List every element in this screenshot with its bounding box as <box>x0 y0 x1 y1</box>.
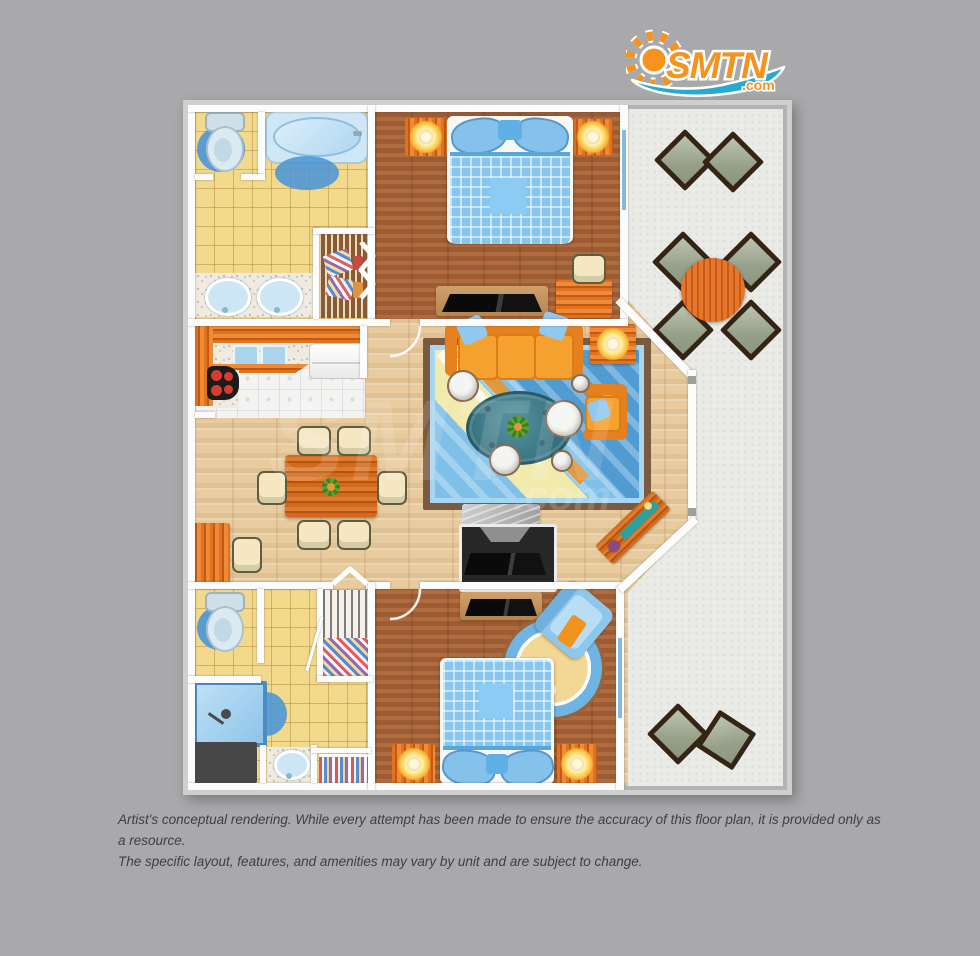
closet-rod-section <box>323 590 368 638</box>
disclaimer-text: Artist's conceptual rendering. While eve… <box>118 810 888 873</box>
wall-desk-chair <box>232 537 262 573</box>
tv <box>442 294 542 312</box>
plant-center <box>514 423 522 431</box>
kitchen-cabinet-top <box>213 326 360 343</box>
sink-left <box>205 278 251 316</box>
blanket-fold <box>490 178 526 214</box>
pouf <box>551 450 573 472</box>
balcony-window <box>622 130 626 210</box>
toilet <box>203 112 243 172</box>
bed-blanket <box>450 152 570 244</box>
linen-closet <box>319 754 371 785</box>
tv-console <box>436 286 548 316</box>
kitchen-sink-right <box>261 345 287 367</box>
lamp-shade <box>407 757 421 771</box>
dining-table <box>285 455 377 517</box>
lamp-shade <box>570 757 584 771</box>
sink <box>274 750 310 780</box>
tv-console <box>460 592 542 620</box>
wire-closet <box>323 590 368 676</box>
disclaimer-line-2: The specific layout, features, and ameni… <box>118 852 888 873</box>
armchair <box>583 384 627 440</box>
bathtub-faucet <box>353 131 362 136</box>
wall-break-symbol <box>357 242 377 304</box>
dining-chair <box>257 471 287 505</box>
desk-chair <box>572 254 606 284</box>
wall-bath2-partition <box>257 589 264 663</box>
floor-plan: SMTN .com <box>183 100 792 795</box>
wall-outer-left <box>188 105 195 785</box>
page: { "logo": { "brand": "SMTN", "tld": ".co… <box>0 0 980 956</box>
utility-area <box>191 742 257 783</box>
burner <box>211 370 222 381</box>
door-jamb <box>688 508 696 516</box>
burner <box>224 372 233 381</box>
pouf <box>447 370 479 402</box>
nightstand-lamp-right <box>573 119 613 155</box>
lamp-shade <box>586 130 600 144</box>
dining-chair <box>297 520 331 550</box>
burner <box>224 385 233 394</box>
bathtub-basin <box>273 117 361 157</box>
wall-h-upper-right <box>420 319 628 326</box>
wall-above-shower <box>188 676 261 683</box>
bed-pillow-center <box>486 754 508 774</box>
pouf <box>571 374 590 393</box>
wall-wirecloset-bottom <box>317 676 373 682</box>
door-arc-bedroom2 <box>390 589 422 621</box>
wall-h-upper-left <box>188 319 390 326</box>
lamp-shade <box>606 337 620 351</box>
disclaimer-line-1: Artist's conceptual rendering. While eve… <box>118 810 888 852</box>
bed <box>447 116 573 243</box>
wall-h-lower-left <box>188 582 333 589</box>
door-jamb <box>688 376 696 384</box>
tub-mat <box>275 156 339 190</box>
wall-closet1-top <box>313 228 375 234</box>
wall-closet1-left <box>313 228 319 319</box>
wall-closet2-top <box>311 748 371 753</box>
sofa-cushion <box>496 334 536 380</box>
sofa-arm-left <box>445 330 457 376</box>
vanity <box>267 747 311 783</box>
table-dot <box>485 406 491 412</box>
side-table-lamp <box>590 324 636 364</box>
nightstand-lamp-right <box>557 744 597 784</box>
balcony-wall-top <box>624 105 787 109</box>
refrigerator-divider <box>312 362 362 364</box>
blanket-fold <box>479 684 513 718</box>
faucet-left <box>222 307 228 313</box>
desk <box>556 280 612 318</box>
coffee-table-plant <box>507 416 529 438</box>
dining-chair <box>297 426 331 456</box>
wall-kitchen-right <box>360 326 367 378</box>
plan-frame-top <box>183 100 792 105</box>
double-sink-vanity <box>195 273 313 317</box>
door-arc-bedroom1 <box>390 326 422 358</box>
plan-frame-left <box>183 100 188 795</box>
pouf <box>489 444 521 476</box>
stove <box>207 366 239 400</box>
logo-tld-text: .com <box>742 77 775 93</box>
dining-chair <box>337 426 371 456</box>
refrigerator <box>309 343 367 379</box>
wall-vanity-left <box>260 745 266 783</box>
bed-pillow-center <box>498 120 522 140</box>
wall-living-balcony <box>688 370 696 522</box>
cabinet-notch <box>480 527 530 542</box>
door-chevron-symbol <box>331 566 369 586</box>
closet-linens <box>323 638 368 676</box>
wall-toilet-room <box>258 112 265 176</box>
wall-outer-bottom <box>188 783 624 790</box>
plan-frame-right <box>787 100 792 795</box>
wall-toilet-stub-left <box>195 174 213 180</box>
balcony-window <box>618 638 622 718</box>
kitchen-sink-left <box>233 345 259 367</box>
dining-chair <box>337 520 371 550</box>
shower-head <box>221 709 231 719</box>
burner <box>211 385 222 396</box>
wall-desk <box>192 523 230 585</box>
tv <box>465 599 537 616</box>
toilet-seat <box>214 138 232 162</box>
dining-chair <box>377 471 407 505</box>
pouf <box>545 400 583 438</box>
faucet-right <box>274 307 280 313</box>
shower <box>193 681 267 747</box>
patio-table <box>681 258 745 322</box>
wall-outer-top <box>188 105 624 112</box>
tv <box>464 553 546 575</box>
wall-bathroom2-bedroom2 <box>368 582 375 790</box>
wall-h-lower-right <box>420 582 624 589</box>
sink-right <box>257 278 303 316</box>
lamp-shade <box>419 130 433 144</box>
kitchen-counter <box>213 343 311 365</box>
bed <box>440 658 554 784</box>
faucet <box>286 773 292 779</box>
bed-blanket <box>443 660 551 750</box>
nightstand-lamp-left <box>405 118 447 156</box>
sideboard-flowers <box>606 539 622 555</box>
plan-frame-bottom <box>183 790 792 795</box>
table-dot <box>539 440 545 446</box>
sofa-cushion <box>534 334 574 380</box>
table-centerpiece <box>322 478 340 496</box>
smtn-logo: SMTN .com <box>626 26 790 98</box>
toilet-seat <box>214 618 232 642</box>
smtn-logo-graphic: SMTN .com <box>626 26 790 98</box>
nightstand-lamp-left <box>392 744 435 784</box>
wall-toilet-stub-right <box>241 174 265 180</box>
wall-kitchen-stub <box>195 412 215 418</box>
centerpiece-flower <box>327 483 335 491</box>
toilet <box>203 592 243 652</box>
